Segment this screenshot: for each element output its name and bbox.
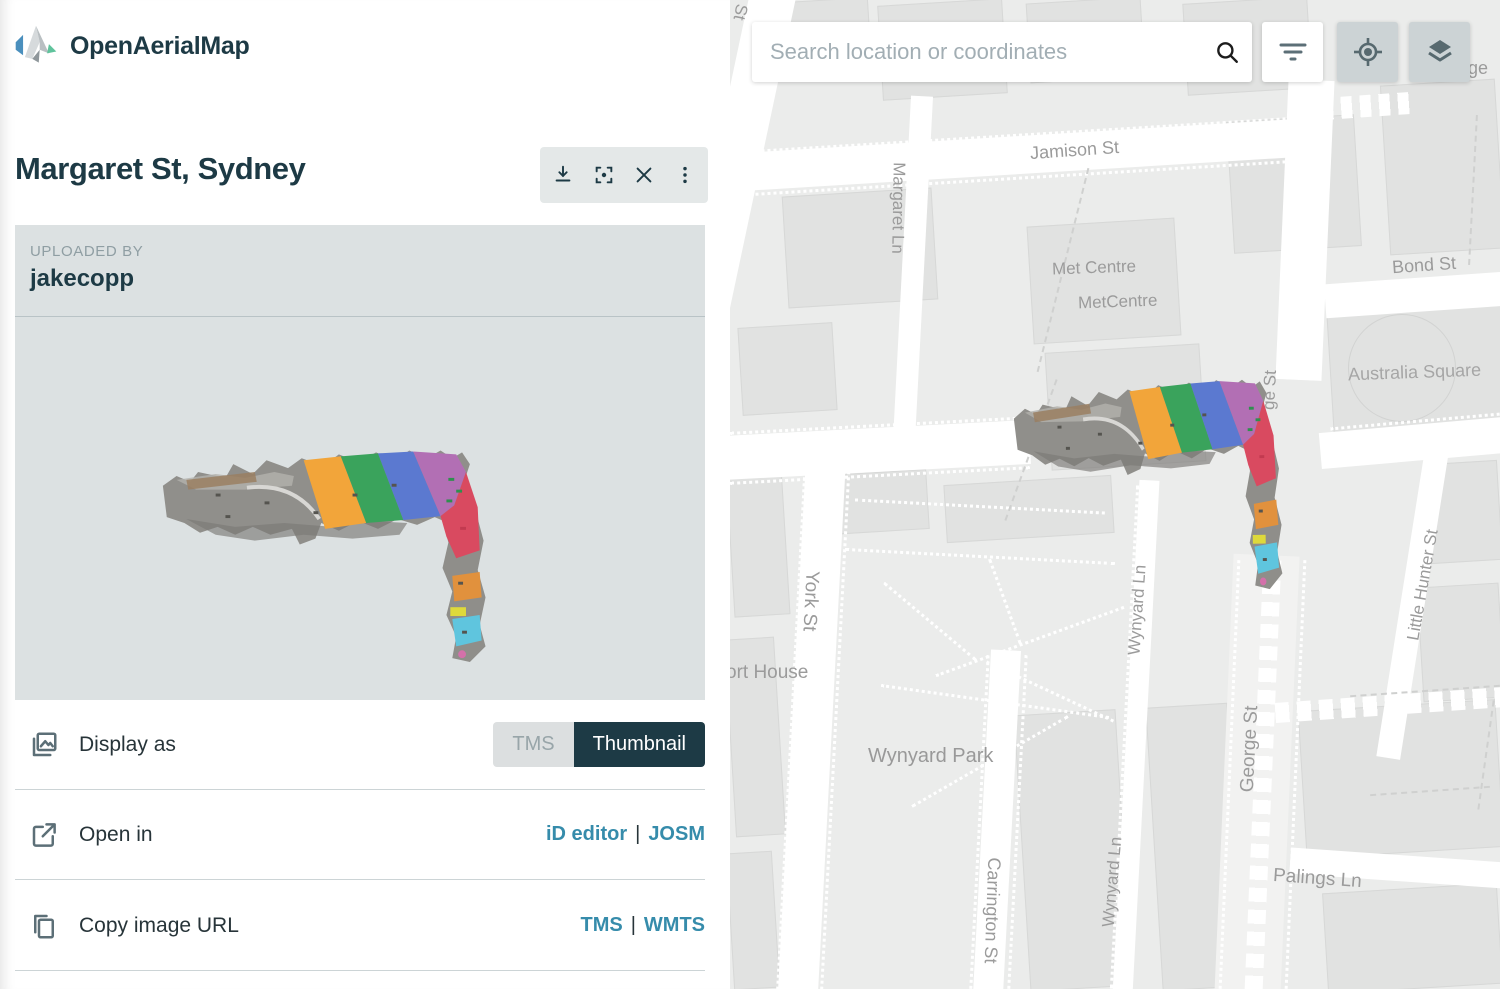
copy-url-label: Copy image URL <box>79 914 239 938</box>
map-label-margaret-ln: Margaret Ln <box>887 153 909 263</box>
imagery-title: Margaret St, Sydney <box>15 151 305 187</box>
link-separator: | <box>635 823 640 846</box>
toggle-tms[interactable]: TMS <box>493 722 573 767</box>
image-icon <box>29 730 59 760</box>
openaerialmap-logo-icon <box>12 22 60 70</box>
center-imagery-button[interactable] <box>586 157 622 193</box>
map-label-met-centre: Met Centre <box>1052 257 1137 280</box>
download-button[interactable] <box>545 157 581 193</box>
display-as-row: Display as TMS Thumbnail <box>15 700 705 790</box>
uploader-name: jakecopp <box>30 265 134 293</box>
close-icon <box>633 164 655 186</box>
map-label-wynyard-park: Wynyard Park <box>868 745 993 768</box>
map-label-york-st: York St <box>797 555 824 646</box>
close-button[interactable] <box>626 157 662 193</box>
open-in-label: Open in <box>79 823 153 847</box>
park-path <box>883 582 977 661</box>
display-as-label: Display as <box>79 733 176 757</box>
map-label-bond-st: Bond St <box>1391 253 1456 278</box>
josm-link[interactable]: JOSM <box>648 823 705 846</box>
external-link-icon <box>29 820 59 850</box>
building <box>1322 883 1500 989</box>
map-label-court-house: ort House <box>730 662 808 684</box>
center-focus-icon <box>593 164 615 186</box>
imagery-thumbnail-area <box>15 317 705 700</box>
imagery-overlay[interactable] <box>1008 353 1302 596</box>
layers-button[interactable] <box>1409 22 1470 82</box>
imagery-toolbar <box>540 147 708 203</box>
id-editor-link[interactable]: iD editor <box>546 823 627 846</box>
details-sidebar: OpenAerialMap Margaret St, Sydney <box>0 0 730 989</box>
wmts-url-link[interactable]: WMTS <box>644 914 705 937</box>
app-brand[interactable]: OpenAerialMap <box>12 22 249 70</box>
layers-icon <box>1424 36 1456 68</box>
building <box>737 322 837 416</box>
filter-button[interactable] <box>1262 22 1323 82</box>
toggle-thumbnail[interactable]: Thumbnail <box>574 722 705 767</box>
open-in-row: Open in iD editor | JOSM <box>15 790 705 880</box>
more-vertical-icon <box>674 164 696 186</box>
search-bar <box>752 22 1252 82</box>
geolocate-icon <box>1352 36 1384 68</box>
map-canvas[interactable]: St Jamison St Margaret Ln Met Centre Met… <box>730 0 1500 989</box>
filter-icon <box>1278 39 1308 65</box>
app-title: OpenAerialMap <box>70 32 249 61</box>
imagery-meta-panel: UPLOADED BY jakecopp <box>15 225 705 700</box>
uploaded-by-label: UPLOADED BY <box>30 243 143 260</box>
map-label-street-fragment: St <box>730 2 751 22</box>
search-input[interactable] <box>752 39 1202 65</box>
map-label-metcentre: MetCentre <box>1078 291 1158 314</box>
search-icon[interactable] <box>1202 22 1252 82</box>
building <box>730 466 790 617</box>
geolocate-button[interactable] <box>1337 22 1398 82</box>
tms-url-link[interactable]: TMS <box>580 914 622 937</box>
download-icon <box>552 164 574 186</box>
display-toggle: TMS Thumbnail <box>493 722 705 767</box>
copy-url-row: Copy image URL TMS | WMTS <box>15 881 705 971</box>
uploaded-by-section: UPLOADED BY jakecopp <box>15 225 705 317</box>
copy-icon <box>29 911 59 941</box>
link-separator: | <box>631 914 636 937</box>
park-path <box>936 606 1125 677</box>
building <box>730 851 780 989</box>
more-options-button[interactable] <box>667 157 703 193</box>
imagery-thumbnail[interactable] <box>157 425 509 665</box>
